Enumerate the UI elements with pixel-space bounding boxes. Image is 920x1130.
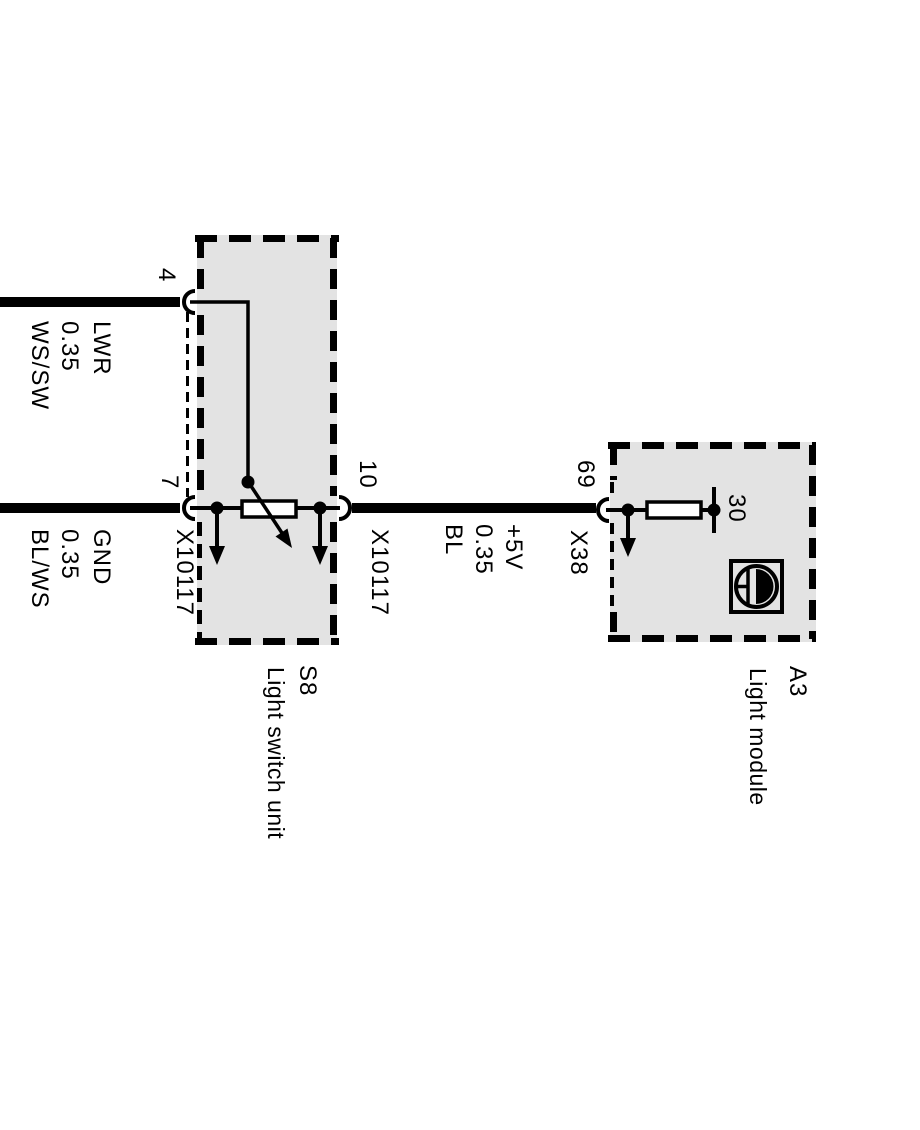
pin-7-label: 7 xyxy=(157,475,181,489)
wire-gnd-gauge-label: 0.35 xyxy=(57,529,81,580)
resistor-symbol xyxy=(647,502,701,518)
connector-cup-pin10 xyxy=(339,497,350,519)
wire-5v-gauge-label: 0.35 xyxy=(471,524,495,575)
wire-5v-signal-label: +5V xyxy=(501,524,525,570)
component-s8-name: Light switch unit xyxy=(264,667,287,839)
component-a3-name: Light module xyxy=(746,668,769,806)
light-switch-unit-box xyxy=(188,235,340,645)
terminal-30-label: 30 xyxy=(724,494,748,523)
wire-lwr-gauge-label: 0.35 xyxy=(57,321,81,372)
wire-gnd-color-label: BL/WS xyxy=(27,529,51,609)
component-s8-id: S8 xyxy=(295,665,319,696)
wire-gnd-signal-label: GND xyxy=(89,529,113,585)
pin-10-label: 10 xyxy=(355,460,379,489)
wire-lwr-color-label: WS/SW xyxy=(27,321,51,410)
light-module-box xyxy=(608,442,816,642)
connector-x10117-right-label: X10117 xyxy=(367,529,391,616)
diagram-graphics xyxy=(0,0,920,1130)
connector-x10117-left-label: X10117 xyxy=(172,529,196,616)
pin-69-label: 69 xyxy=(573,460,597,489)
wire-lwr-signal-label: LWR xyxy=(89,321,113,376)
connector-x38-label: X38 xyxy=(566,530,590,576)
component-a3-id: A3 xyxy=(785,666,809,697)
wire-5v-color-label: BL xyxy=(441,524,465,555)
wiring-diagram: LWR 0.35 WS/SW GND 0.35 BL/WS +5V 0.35 B… xyxy=(0,0,920,1130)
pin-4-label: 4 xyxy=(154,268,178,282)
